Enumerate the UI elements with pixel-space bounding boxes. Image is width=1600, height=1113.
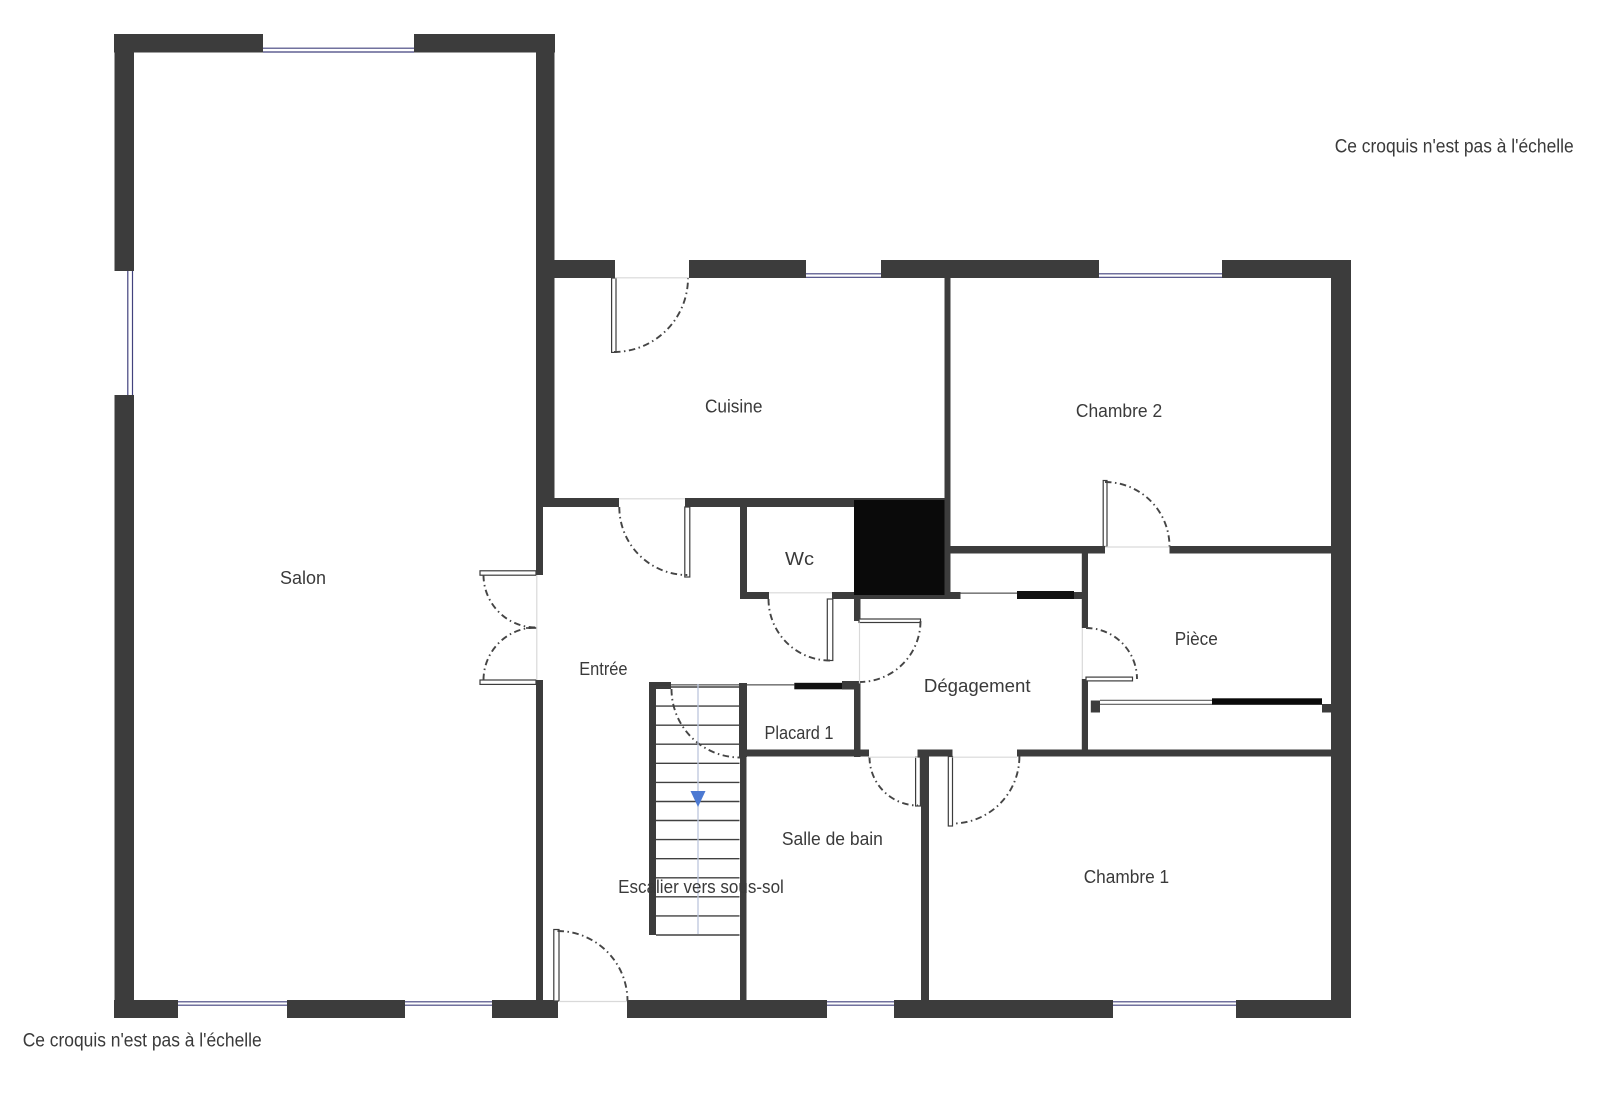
svg-text:Escalier vers sous-sol: Escalier vers sous-sol bbox=[618, 876, 784, 897]
svg-text:Dégagement: Dégagement bbox=[924, 675, 1031, 696]
svg-text:Pièce: Pièce bbox=[1175, 628, 1218, 649]
svg-text:Entrée: Entrée bbox=[579, 658, 627, 679]
svg-text:Salon: Salon bbox=[280, 567, 326, 588]
svg-text:Ce croquis n'est pas à l'échel: Ce croquis n'est pas à l'échelle bbox=[23, 1031, 262, 1052]
svg-text:Cuisine: Cuisine bbox=[705, 396, 763, 417]
svg-text:Salle de bain: Salle de bain bbox=[782, 828, 883, 849]
svg-text:Chambre 1: Chambre 1 bbox=[1084, 866, 1169, 887]
svg-text:Ce croquis n'est pas à l'échel: Ce croquis n'est pas à l'échelle bbox=[1335, 137, 1574, 158]
svg-text:Placard 1: Placard 1 bbox=[765, 722, 834, 743]
svg-text:Wc: Wc bbox=[785, 548, 814, 569]
svg-text:Chambre 2: Chambre 2 bbox=[1076, 400, 1162, 421]
